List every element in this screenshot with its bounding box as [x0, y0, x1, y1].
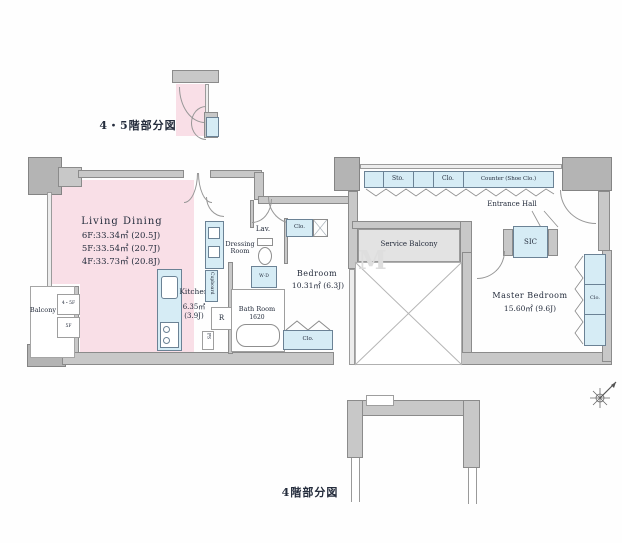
toilet-bowl — [258, 247, 272, 265]
hatch-box — [313, 219, 328, 237]
wall-segment — [562, 157, 612, 191]
washer-label: W·D — [251, 274, 277, 279]
pipe-space-label: PS — [206, 333, 211, 339]
folding-door-icon — [574, 256, 584, 344]
living-dining-area-4f: 4F:33.73㎡ (20.8J) — [60, 258, 182, 268]
master-closet-label: Clo. — [584, 296, 606, 302]
compass-icon — [586, 380, 620, 414]
watermark: M — [358, 246, 387, 276]
bedroom-name: Bedroom — [287, 269, 347, 278]
stove-burner — [163, 337, 170, 344]
cupboard-box: Cupboard — [205, 270, 218, 302]
window-wall — [47, 192, 52, 288]
wall-segment — [78, 170, 184, 178]
kitchen-stove — [160, 322, 179, 348]
strip-divider — [413, 171, 414, 188]
toilet-tank — [257, 238, 273, 246]
wall-segment — [348, 191, 358, 269]
pipe-space-box: PS — [202, 331, 214, 350]
wall-segment — [347, 400, 363, 458]
stove-burner — [163, 326, 170, 333]
entrance-door-arc — [560, 190, 596, 224]
master-bedroom-name: Master Bedroom — [470, 291, 590, 300]
living-dining-name: Living Dining — [62, 216, 182, 228]
storage-counter-label: Counter (Shoe Clo.) — [463, 176, 554, 182]
closet-divider — [584, 284, 606, 285]
vanity-sink — [208, 246, 220, 258]
upper-detail-title: 4・5階部分図 — [92, 120, 184, 133]
wall-segment — [463, 400, 480, 468]
living-dining-area-5f: 5F:33.54㎡ (20.7J) — [60, 245, 182, 255]
balcony-tag-lower: 5F — [57, 324, 80, 329]
wall-segment — [352, 221, 470, 229]
kitchen-tatami: (3.9J) — [176, 312, 212, 320]
floor-plan: 4・5階部分図 Living Dining 6F:33.34㎡ (20.5J) … — [0, 0, 622, 543]
dressing-room-name: Dressing Room — [220, 241, 260, 256]
bedroom-area: 10.31㎡ (6.3J) — [278, 282, 358, 291]
master-bedroom-area: 15.60㎡ (9.6J) — [470, 305, 590, 314]
kitchen-area: 6.35㎡ — [176, 303, 212, 311]
folding-door-icon — [366, 188, 554, 197]
lav-closet-label: Clo. — [286, 224, 313, 230]
storage-clo-label: Clo. — [433, 176, 463, 183]
bath-room-size: 1620 — [229, 315, 285, 322]
storage-sto-label: Sto. — [383, 176, 413, 183]
vanity-sink — [208, 227, 220, 239]
sic-label: SIC — [513, 238, 548, 246]
dressing-line2: Room — [220, 248, 260, 255]
closet-divider — [584, 314, 606, 315]
entrance-hall-name: Entrance Hall — [480, 200, 544, 208]
lower-detail-title: 4階部分図 — [270, 487, 350, 500]
balcony-tag-upper: 4・5F — [57, 301, 80, 306]
cupboard-label: Cupboard — [209, 272, 214, 295]
wall-segment — [548, 229, 558, 256]
wall-segment — [598, 191, 610, 251]
door-arc — [184, 173, 198, 203]
lavatory-name: Lav. — [251, 225, 275, 233]
door-arc — [477, 251, 505, 279]
wall-notch — [366, 395, 394, 406]
wall-segment — [458, 352, 612, 365]
living-dining-area-6f: 6F:33.34㎡ (20.5J) — [60, 232, 182, 242]
door-arc — [198, 173, 212, 203]
window-wall — [468, 468, 477, 504]
window-wall — [351, 458, 360, 502]
bedroom-closet-label: Clo. — [283, 336, 333, 342]
void-cross-lines — [355, 262, 462, 365]
window-wall — [360, 164, 562, 169]
bath-room-name: Bath Room — [229, 306, 285, 313]
wall-segment — [172, 70, 219, 83]
wall-segment — [62, 352, 334, 365]
bathtub — [236, 324, 280, 347]
storage-box — [206, 117, 219, 137]
wall-segment — [334, 157, 360, 191]
wall-segment — [28, 157, 62, 195]
